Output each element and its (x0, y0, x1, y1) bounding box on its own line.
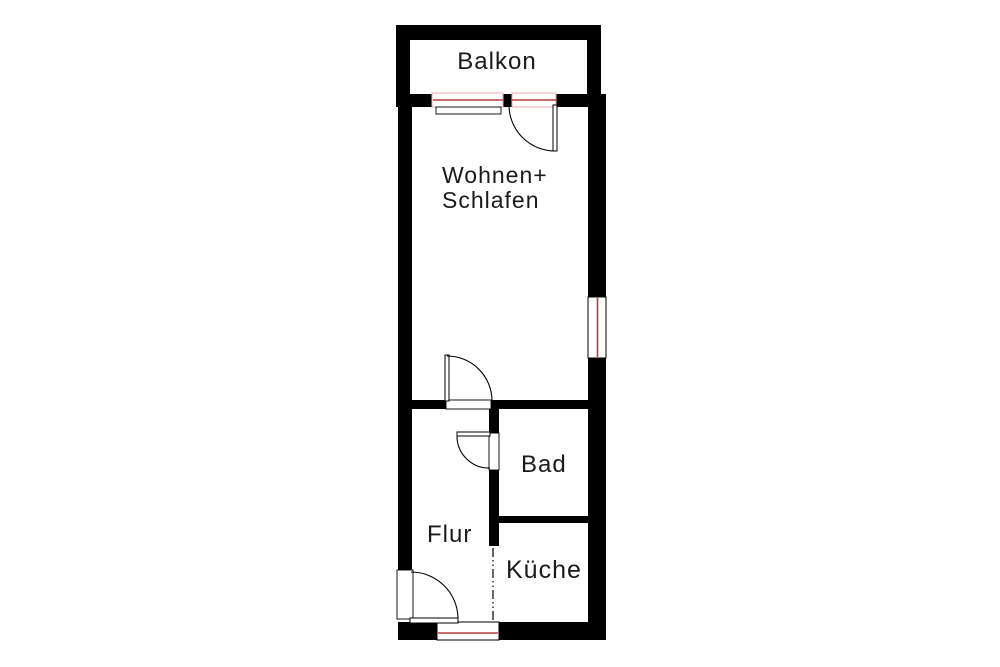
bottom-outer-wall-left (398, 622, 438, 640)
room-label-wohnen-line2: Schlafen (442, 187, 540, 213)
bathroom-door-leaf (457, 432, 490, 436)
living-room-door-leaf (445, 355, 449, 401)
balcony-door-leaf (553, 105, 557, 151)
bottom-outer-wall-right (498, 622, 606, 640)
room-label-wohnen-schlafen: Wohnen+ Schlafen (442, 163, 548, 213)
room-label-balkon: Balkon (436, 49, 558, 75)
room-label-bad: Bad (521, 452, 567, 478)
balcony-divider-wall-mid (503, 94, 512, 107)
entry-door-opening (397, 570, 413, 619)
entry-door-leaf (410, 618, 458, 623)
balcony-window-sill (436, 107, 501, 114)
bad-kueche-wall (489, 516, 606, 523)
bathroom-door-opening (489, 433, 499, 470)
bathroom-door-arc (457, 436, 490, 468)
right-outer-wall-upper (588, 95, 606, 297)
wohnen-flur-wall-left (412, 400, 446, 409)
room-label-wohnen-line1: Wohnen+ (442, 162, 548, 188)
floorplan: Balkon Wohnen+ Schlafen Bad Flur Küche (0, 0, 1000, 667)
flur-bad-wall-lower (489, 470, 499, 546)
balcony-top-wall (396, 25, 601, 40)
left-outer-wall (398, 95, 412, 570)
entry-door-arc (411, 572, 458, 618)
bottom-window (437, 622, 499, 640)
room-label-kueche: Küche (506, 557, 582, 584)
floorplan-drawing (0, 0, 1000, 667)
balcony-door-arc (509, 105, 555, 151)
right-outer-wall-lower (588, 358, 606, 640)
room-label-flur: Flur (427, 522, 472, 548)
living-room-door-arc (447, 356, 492, 401)
wohnen-flur-wall-right (491, 400, 588, 409)
living-room-door-opening (446, 400, 491, 409)
